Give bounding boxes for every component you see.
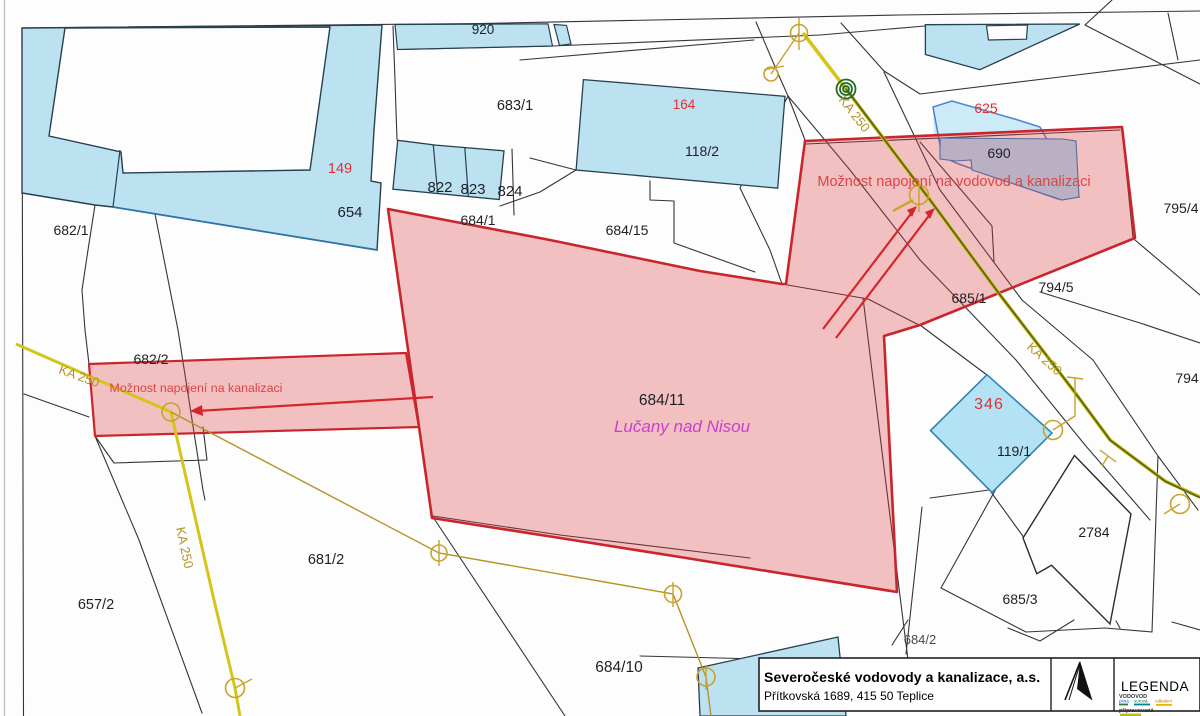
svg-text:654: 654: [337, 204, 362, 221]
svg-text:824: 824: [497, 183, 522, 200]
svg-text:přípravovaná: přípravovaná: [1119, 708, 1154, 714]
svg-text:Možnost napojení na kanalizac: Možnost napojení na kanalizaci: [110, 381, 283, 395]
svg-text:794/5: 794/5: [1038, 279, 1073, 295]
svg-text:683/1: 683/1: [497, 98, 533, 114]
svg-text:795/4: 795/4: [1163, 200, 1198, 216]
svg-text:Možnost napojení na vodovod a: Možnost napojení na vodovod a kanalizaci: [817, 174, 1090, 190]
svg-text:LEGENDA: LEGENDA: [1121, 679, 1189, 694]
svg-text:684/1: 684/1: [460, 212, 495, 228]
svg-text:149: 149: [328, 161, 352, 177]
svg-text:794: 794: [1175, 370, 1199, 386]
svg-text:Severočeské vodovody a kanaliz: Severočeské vodovody a kanalizace, a.s.: [764, 669, 1040, 685]
svg-text:odkalení: odkalení: [1155, 699, 1173, 704]
svg-text:346: 346: [974, 396, 1004, 413]
svg-text:685/1: 685/1: [951, 290, 986, 306]
svg-text:682/2: 682/2: [133, 351, 168, 367]
svg-text:657/2: 657/2: [78, 597, 114, 613]
svg-text:625: 625: [974, 100, 998, 116]
svg-text:920: 920: [472, 22, 495, 37]
svg-text:118/2: 118/2: [685, 143, 719, 159]
svg-text:684/2: 684/2: [904, 632, 937, 647]
svg-text:684/11: 684/11: [639, 392, 685, 409]
svg-text:822: 822: [427, 179, 452, 196]
svg-text:Přítkovská 1689, 415 50 Teplic: Přítkovská 1689, 415 50 Teplice: [764, 689, 934, 703]
svg-text:684/15: 684/15: [606, 222, 649, 238]
svg-text:681/2: 681/2: [308, 552, 344, 568]
svg-text:823: 823: [460, 181, 485, 198]
svg-text:690: 690: [987, 145, 1011, 161]
svg-text:surová: surová: [1134, 699, 1148, 704]
svg-text:Lučany nad Nisou: Lučany nad Nisou: [614, 417, 751, 436]
svg-text:684/10: 684/10: [595, 659, 643, 676]
svg-text:682/1: 682/1: [53, 222, 88, 238]
svg-text:164: 164: [673, 97, 696, 112]
svg-text:pitná: pitná: [1119, 699, 1129, 704]
svg-text:119/1: 119/1: [997, 443, 1031, 459]
svg-text:2784: 2784: [1078, 524, 1109, 540]
svg-text:685/3: 685/3: [1002, 591, 1037, 607]
